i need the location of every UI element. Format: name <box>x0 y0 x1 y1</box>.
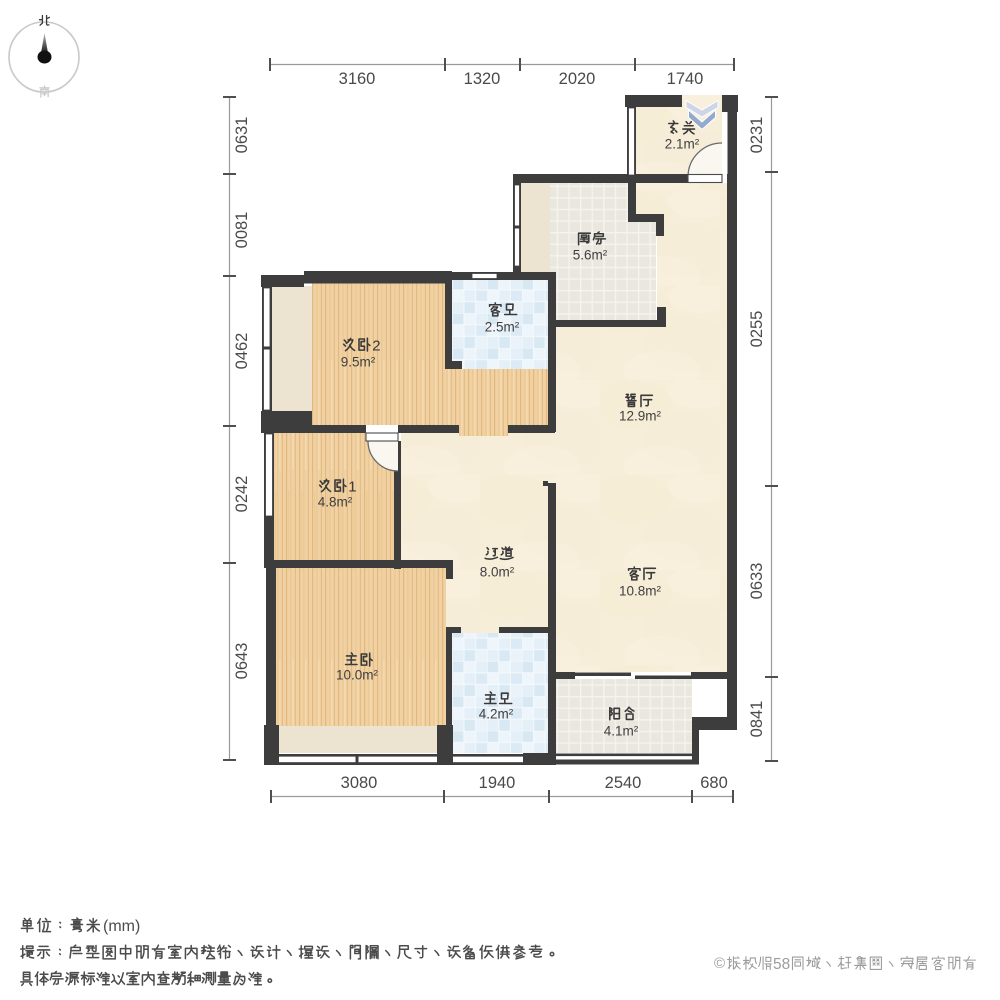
svg-text:2540: 2540 <box>605 774 642 792</box>
svg-text:(mm): (mm) <box>103 918 140 935</box>
svg-text:0841: 0841 <box>748 701 766 738</box>
svg-text:5.6m²: 5.6m² <box>573 248 608 263</box>
svg-text:2.5m²: 2.5m² <box>485 320 520 335</box>
svg-text:2.1m²: 2.1m² <box>665 137 700 152</box>
svg-text:4.2m²: 4.2m² <box>479 707 514 722</box>
svg-text:1320: 1320 <box>464 70 501 88</box>
svg-text:0242: 0242 <box>233 476 251 513</box>
svg-text:0231: 0231 <box>748 117 766 154</box>
svg-text:4.1m²: 4.1m² <box>604 724 639 739</box>
svg-text:12.9m²: 12.9m² <box>619 409 662 424</box>
svg-text:0633: 0633 <box>748 563 766 600</box>
svg-text:2020: 2020 <box>559 70 596 88</box>
svg-text:3160: 3160 <box>339 70 376 88</box>
svg-text:58: 58 <box>773 956 790 973</box>
svg-text:680: 680 <box>700 774 728 792</box>
svg-text:4.8m²: 4.8m² <box>318 495 353 510</box>
svg-text:3080: 3080 <box>341 774 378 792</box>
svg-text:9.5m²: 9.5m² <box>341 355 376 370</box>
svg-text:1740: 1740 <box>667 70 704 88</box>
svg-text:0081: 0081 <box>233 212 251 249</box>
svg-text:0643: 0643 <box>233 643 251 680</box>
svg-text:0255: 0255 <box>748 311 766 348</box>
svg-text:10.0m²: 10.0m² <box>336 668 379 683</box>
svg-text:1: 1 <box>348 478 356 495</box>
svg-text:1940: 1940 <box>479 774 516 792</box>
svg-text:0462: 0462 <box>233 333 251 370</box>
svg-text:©: © <box>714 955 725 972</box>
svg-text:2: 2 <box>372 337 380 354</box>
svg-text:8.0m²: 8.0m² <box>480 565 515 580</box>
svg-text:10.8m²: 10.8m² <box>619 584 662 599</box>
svg-text:0631: 0631 <box>233 117 251 154</box>
